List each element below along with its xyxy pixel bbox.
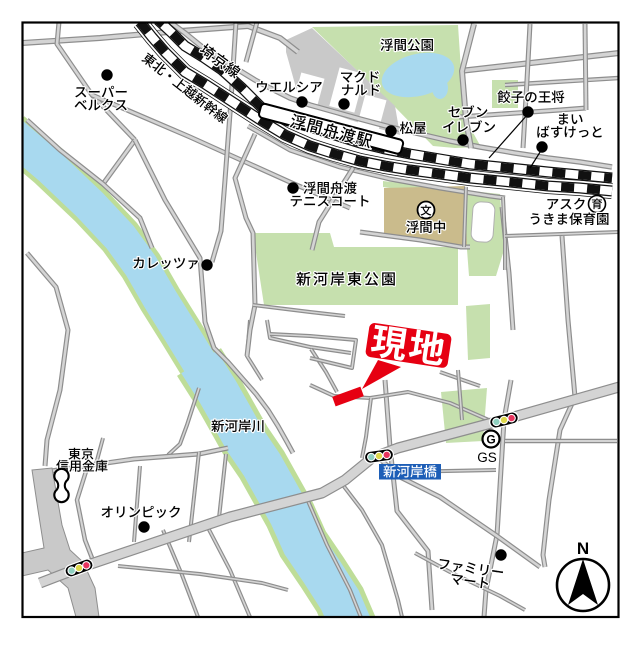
svg-text:GS: GS bbox=[477, 450, 497, 465]
svg-text:G: G bbox=[486, 433, 495, 447]
svg-text:N: N bbox=[577, 539, 589, 558]
